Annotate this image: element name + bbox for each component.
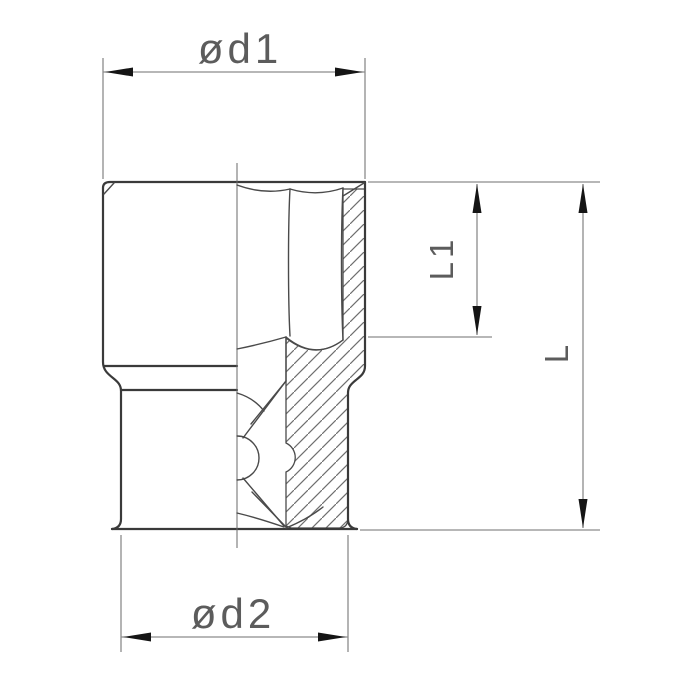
socket-section-drawing: ød1 ød2 L1 L xyxy=(0,0,700,700)
arrowhead-d1-left xyxy=(105,68,133,77)
arrowhead-d2-right xyxy=(318,633,346,642)
dim-label-l: L xyxy=(538,341,575,363)
dimension-l1: L1 xyxy=(368,182,600,337)
arrowhead-l-top xyxy=(579,184,588,213)
arrowhead-d1-right xyxy=(335,68,363,77)
section-hatch xyxy=(230,175,410,540)
arrowhead-l1-top xyxy=(473,184,482,213)
arrowhead-d2-left xyxy=(123,633,151,642)
dimension-d1: ød1 xyxy=(103,25,365,179)
dimension-l: L xyxy=(360,184,600,530)
arrowhead-l-bottom xyxy=(579,499,588,528)
dim-label-d1: ød1 xyxy=(198,25,282,72)
arrowhead-l1-bottom xyxy=(473,306,482,335)
dim-label-l1: L1 xyxy=(423,236,460,281)
technical-drawing-canvas: ød1 ød2 L1 L xyxy=(0,0,700,700)
dimension-d2: ød2 xyxy=(121,535,348,652)
dim-label-d2: ød2 xyxy=(191,590,275,637)
